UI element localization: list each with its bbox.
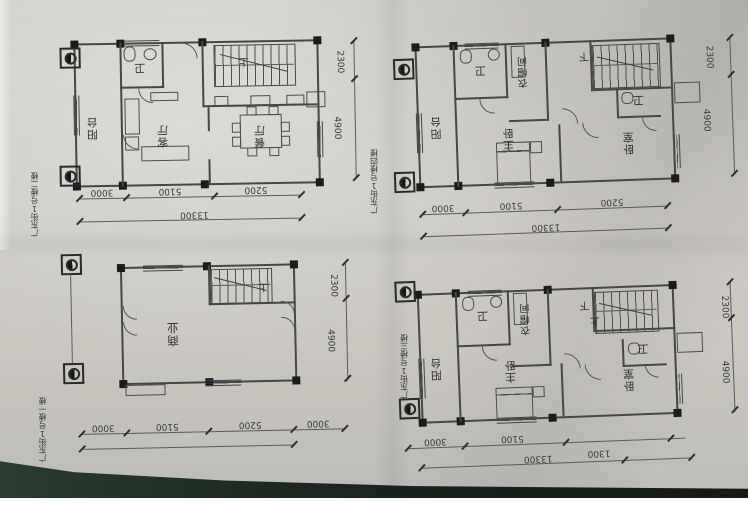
stair-label-up: 上 — [238, 54, 250, 66]
room-label-commercial: 商业 — [164, 315, 183, 353]
stove — [250, 95, 270, 105]
ac-ledge — [674, 81, 701, 103]
nightstand — [532, 386, 544, 397]
dim-label: 5100 — [496, 199, 526, 211]
room-label-balcony: 阳台 — [427, 104, 445, 151]
dim-label-right: 2300 — [318, 278, 348, 293]
bath-wall — [507, 290, 511, 345]
floor2-plan: 阳台 卫 客厅 餐厅 上 3000 5100 5200 13300 2300 4… — [53, 30, 387, 241]
stair-label-down: 下 — [578, 298, 590, 310]
dim-label: 5100 — [155, 185, 185, 197]
window — [416, 113, 423, 153]
floor3-plan: 阳台 卫 衣帽间 下 上 卫 主卧 卧室 3000 5100 13300 130… — [388, 246, 748, 504]
column-axis-symbol — [60, 165, 81, 186]
floor1-plan: 商业 上 3000 5100 5200 3000 2300 4900 — [53, 245, 388, 487]
toilet — [460, 49, 472, 63]
room-label-balcony: 阳台 — [84, 105, 101, 151]
dim-label: 5100 — [152, 420, 182, 432]
door-arc — [482, 346, 498, 362]
window — [676, 374, 683, 404]
column — [671, 174, 679, 182]
room-label-cloakroom: 衣帽间 — [516, 45, 533, 99]
axis-label-floor4: 广东街1号楼四楼 — [368, 143, 381, 221]
cloak-wall — [544, 42, 549, 121]
paper-edge-highlight — [0, 0, 12, 250]
room-label-bedroom: 卧室 — [620, 124, 637, 163]
dimension-line — [422, 206, 667, 216]
cloak-wall — [547, 289, 552, 366]
balcony-wall — [119, 43, 124, 187]
outer-wall — [316, 39, 321, 183]
room-label-bath2: 卫 — [636, 342, 651, 357]
dim-label-total: 13300 — [518, 452, 558, 465]
column — [316, 178, 324, 186]
column — [117, 264, 125, 272]
door-arc — [123, 306, 137, 320]
dimension-line-right — [729, 37, 735, 174]
door-arc — [582, 122, 599, 139]
dimension-line-total — [82, 444, 294, 449]
sofa-side — [124, 98, 140, 134]
nightstand — [530, 141, 542, 153]
outer-wall — [293, 263, 297, 381]
dim-label: 5100 — [497, 432, 527, 444]
column — [416, 183, 424, 191]
sink — [488, 48, 500, 60]
tv-cabinet — [150, 92, 178, 101]
bath2-wall — [616, 88, 619, 118]
partition-wall — [208, 107, 210, 131]
column-axis-symbol — [63, 363, 84, 384]
room-label-living: 客厅 — [155, 118, 172, 154]
dimension-tick — [290, 441, 298, 449]
entry-step — [125, 384, 165, 396]
chair — [268, 106, 278, 115]
dim-label-extra: 1300 — [582, 446, 616, 458]
coffee-table — [125, 136, 139, 150]
bed — [495, 386, 533, 420]
sink — [490, 296, 502, 308]
balcony-wall — [452, 45, 459, 187]
chair — [246, 106, 256, 115]
dim-label: 3000 — [303, 417, 333, 429]
door-arc — [123, 322, 137, 336]
dim-label-right: 2300 — [709, 299, 740, 314]
dimension-tick — [665, 224, 673, 232]
toilet — [123, 46, 135, 61]
window — [418, 359, 426, 399]
window — [674, 134, 681, 168]
chair — [232, 123, 241, 133]
dim-label: 3000 — [88, 421, 118, 433]
door-arc — [564, 353, 581, 370]
dim-label-total: 13300 — [174, 208, 214, 220]
room-label-master: 主卧 — [500, 120, 517, 159]
blueprint-photo: 阳台 卫 客厅 餐厅 上 3000 5100 5200 13300 2300 4… — [0, 0, 748, 498]
column-axis-symbol — [59, 47, 80, 68]
door-arc — [562, 108, 579, 125]
room-label-bath2: 卫 — [631, 93, 645, 107]
column — [292, 376, 300, 384]
kitchen-counter — [214, 96, 228, 106]
dimension-tick — [731, 406, 739, 414]
column-axis-symbol — [394, 171, 416, 193]
dimension-tick — [352, 174, 360, 182]
dim-label-total: 13300 — [526, 220, 566, 232]
room-label-cloakroom: 衣帽间 — [519, 292, 536, 347]
partition-wall — [558, 124, 562, 181]
column — [313, 36, 321, 44]
dim-label-right: 4900 — [322, 121, 352, 136]
ac-ledge — [676, 332, 703, 353]
axis-label-floor2: 广东街1号楼二楼 — [28, 150, 42, 260]
column — [666, 34, 674, 42]
dim-label: 3000 — [420, 435, 450, 447]
dimension-line — [81, 428, 344, 435]
balcony-wall — [455, 292, 462, 422]
bath-wall — [504, 43, 508, 98]
room-label-bath1: 卫 — [474, 308, 491, 325]
partition-wall — [561, 363, 565, 416]
door-arc — [642, 117, 656, 131]
room-label-bedroom: 卧室 — [620, 360, 637, 399]
axis-label-floor1: 广东街1号楼一楼 — [36, 387, 50, 472]
door-arc — [645, 364, 660, 379]
dim-label-right: 4900 — [691, 113, 721, 128]
dimension-tick — [344, 374, 352, 382]
stair-label-up: 上 — [589, 314, 601, 326]
stairs — [592, 43, 661, 89]
dim-label-right: 2300 — [694, 50, 724, 65]
partition-wall — [208, 159, 210, 185]
kitchen-sink — [286, 95, 304, 105]
kitchen-wall — [201, 41, 204, 107]
column — [548, 414, 556, 422]
dimension-tick — [664, 202, 672, 210]
column — [673, 409, 681, 417]
chair — [281, 136, 290, 146]
column — [201, 180, 209, 188]
dim-label: 5200 — [597, 195, 627, 207]
window — [73, 95, 80, 135]
sink — [143, 48, 156, 60]
chair — [232, 137, 241, 147]
window — [143, 265, 183, 272]
dim-label: 5200 — [235, 418, 265, 430]
window — [205, 380, 241, 387]
stair-label-up: 上 — [257, 280, 269, 292]
dimension-tick — [731, 169, 739, 177]
room-label-bath: 卫 — [132, 60, 148, 76]
floor4-plan: 阳台 卫 衣帽间 下 卫 主卧 卧室 3000 5100 5200 13300 … — [389, 22, 748, 269]
column — [290, 260, 298, 268]
dimension-tick — [688, 453, 696, 461]
room-label-bath1: 卫 — [472, 63, 489, 80]
dimension-tick — [298, 214, 306, 222]
column — [546, 179, 554, 187]
dimension-tick — [341, 424, 349, 432]
chair — [269, 147, 279, 156]
column — [668, 281, 676, 289]
column — [411, 43, 419, 51]
column — [419, 419, 427, 427]
column-axis-symbol — [61, 254, 82, 275]
dim-label-right: 4900 — [710, 364, 741, 379]
dim-label-right: 4900 — [315, 333, 345, 348]
door-arc — [479, 99, 495, 115]
dim-label: 3000 — [428, 201, 458, 213]
axis-line — [70, 273, 73, 363]
door-arc — [585, 364, 602, 381]
column-axis-symbol — [393, 58, 415, 80]
room-label-balcony: 阳台 — [428, 346, 446, 393]
room-label-master: 主卧 — [502, 352, 519, 391]
dimension-tick — [298, 191, 306, 199]
chair — [281, 122, 290, 132]
stairs — [594, 290, 660, 334]
toilet — [462, 297, 475, 311]
room-label-dining: 餐厅 — [252, 118, 269, 154]
bath-wall — [161, 42, 164, 88]
ac-ledge — [306, 91, 325, 107]
axis-label-floor3: 广东街1号楼三楼 — [398, 328, 411, 406]
dim-label: 3000 — [87, 186, 117, 198]
door-arc — [181, 42, 197, 58]
dim-label: 5200 — [241, 183, 271, 195]
dim-label-right: 2300 — [325, 55, 355, 70]
column-axis-symbol — [394, 281, 416, 303]
stair-label-down: 下 — [578, 49, 590, 61]
